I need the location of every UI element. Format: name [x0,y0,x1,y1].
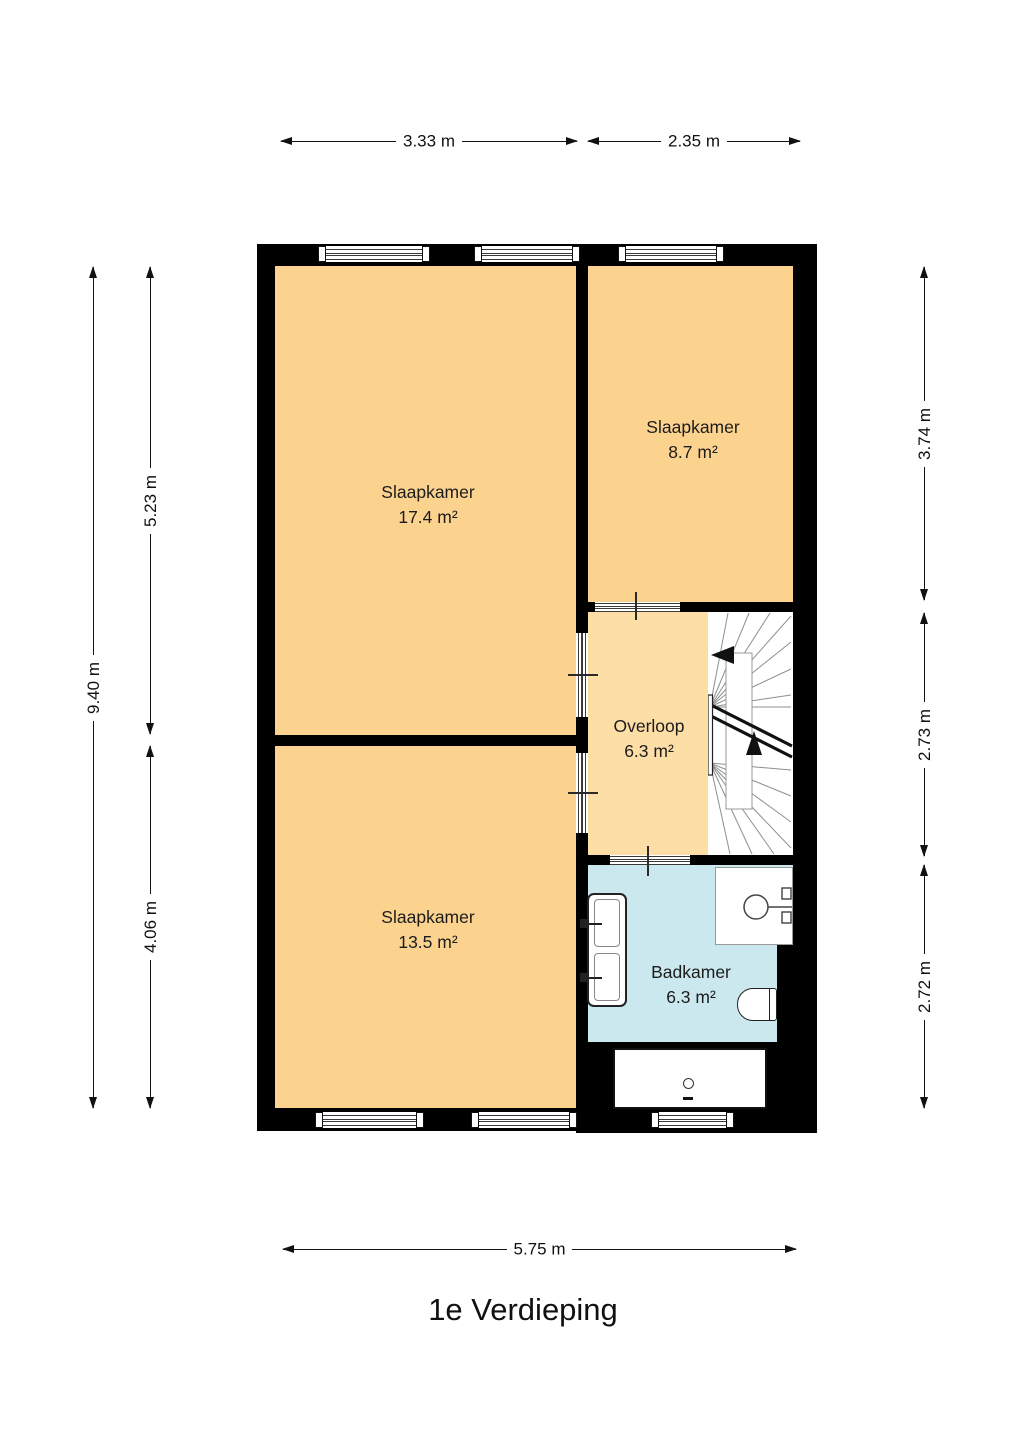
window-cap [315,1112,323,1128]
wall-right-upper [793,244,817,945]
window-1 [325,246,423,262]
arrow-right-icon [785,1245,797,1253]
window-cap [618,246,626,262]
opening-landing-bathroom [610,855,690,865]
dim-label: 2.35 m [661,131,727,151]
room-name: Slaapkamer [381,480,474,505]
dim-right-lower-height: 2.72 m [924,865,925,1108]
toilet [737,988,777,1021]
arrow-up-icon [146,745,154,757]
room-area: 6.3 m² [651,985,731,1010]
faucet-icon [580,919,588,928]
arrow-up-icon [920,612,928,624]
wall-interior-vertical-a [576,266,588,633]
vanity-sink [587,893,627,1007]
arrow-down-icon [920,845,928,857]
dim-label: 3.33 m [396,131,462,151]
arrow-left-icon [280,137,292,145]
opening-tick [647,846,649,876]
room-label-bedroom3: Slaapkamer 13.5 m² [381,905,474,955]
window-3 [625,246,717,262]
bathtub-drain-icon [683,1078,694,1089]
arrow-down-icon [146,723,154,735]
arrow-down-icon [920,1097,928,1109]
window-cap [416,1112,424,1128]
room-area: 17.4 m² [381,505,474,530]
window-5 [478,1112,570,1128]
dim-right-middle-height: 2.73 m [924,613,925,856]
dim-left-total-height: 9.40 m [93,267,94,1108]
dim-label: 2.72 m [915,954,935,1020]
arrow-up-icon [920,266,928,278]
window-4 [322,1112,417,1128]
dim-label: 9.40 m [84,655,104,721]
arrow-up-icon [89,266,97,278]
room-area: 6.3 m² [613,739,684,764]
room-label-bedroom2: Slaapkamer 8.7 m² [646,415,739,465]
opening-bedroom2-landing [595,602,680,612]
staircase [708,612,793,855]
opening-tick [568,792,598,794]
wall-bedroom2-landing-b [680,602,793,612]
bathtub [613,1048,767,1109]
window-cap [716,246,724,262]
wall-bedroom2-landing-a [588,602,595,612]
arrow-right-icon [789,137,801,145]
dim-label: 5.75 m [507,1239,573,1259]
dim-right-upper-height: 3.74 m [924,267,925,600]
window-cap [422,246,430,262]
window-6 [658,1112,727,1128]
dim-label: 3.74 m [915,401,935,467]
room-label-bathroom: Badkamer 6.3 m² [651,960,731,1010]
room-label-bedroom1: Slaapkamer 17.4 m² [381,480,474,530]
room-name: Slaapkamer [381,905,474,930]
room-area: 13.5 m² [381,930,474,955]
wall-bedrooms-divider [270,735,576,746]
wall-interior-vertical-b [576,717,588,753]
opening-tick [568,674,598,676]
opening-tick [635,592,637,620]
dim-left-upper-height: 5.23 m [150,267,151,734]
room-name: Overloop [613,714,684,739]
window-cap [471,1112,479,1128]
dim-label: 2.73 m [915,702,935,768]
arrow-left-icon [587,137,599,145]
room-name: Slaapkamer [646,415,739,440]
arrow-down-icon [89,1097,97,1109]
room-area: 8.7 m² [646,440,739,465]
floor-plan-canvas: Slaapkamer 17.4 m² Slaapkamer 8.7 m² Sla… [0,0,1018,1440]
arrow-down-icon [920,589,928,601]
window-cap [651,1112,659,1128]
wall-left [257,244,275,1131]
arrow-up-icon [920,864,928,876]
arrow-up-icon [146,266,154,278]
dim-top-left-width: 3.33 m [281,141,577,142]
window-cap [569,1112,577,1128]
wall-landing-bathroom-a [588,855,610,865]
faucet-icon [580,973,588,982]
dim-label: 5.23 m [141,468,161,534]
window-cap [474,246,482,262]
arrow-right-icon [566,137,578,145]
wall-landing-bathroom-b [690,855,793,865]
window-cap [318,246,326,262]
dim-bottom-width: 5.75 m [283,1249,796,1250]
room-name: Badkamer [651,960,731,985]
window-cap [726,1112,734,1128]
shower [715,867,793,945]
arrow-left-icon [282,1245,294,1253]
arrow-down-icon [146,1097,154,1109]
window-cap [572,246,580,262]
dim-label: 4.06 m [141,894,161,960]
floor-title: 1e Verdieping [323,1292,723,1328]
dim-left-lower-height: 4.06 m [150,746,151,1108]
dim-top-right-width: 2.35 m [588,141,800,142]
room-label-landing: Overloop 6.3 m² [613,714,684,764]
window-2 [481,246,573,262]
